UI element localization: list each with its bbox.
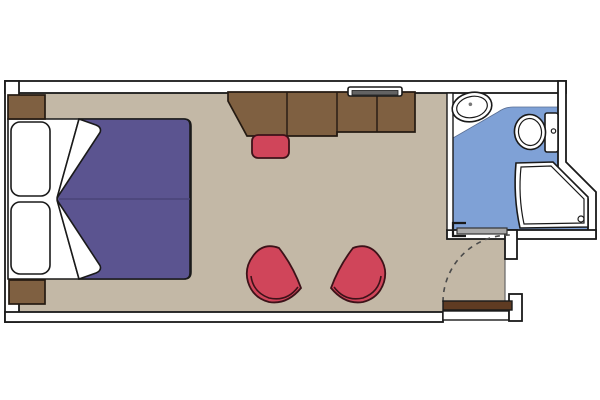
tv-screen	[352, 91, 398, 96]
pillow-bottom	[11, 202, 50, 274]
bed-group	[8, 119, 191, 279]
pillow-top	[11, 122, 50, 196]
wall-bathroom-left	[447, 93, 453, 230]
entry-threshold	[443, 311, 509, 320]
entry-door	[443, 301, 512, 310]
desk-stool	[252, 135, 289, 158]
wall-bottom	[5, 312, 443, 322]
desk-wardrobe-unit	[228, 92, 415, 136]
nightstand-top	[8, 95, 45, 119]
floor-plan-drawing	[0, 0, 600, 400]
nightstand-bottom	[9, 280, 45, 304]
bathroom-sliding-door	[457, 228, 507, 234]
floor-plan	[0, 0, 600, 400]
